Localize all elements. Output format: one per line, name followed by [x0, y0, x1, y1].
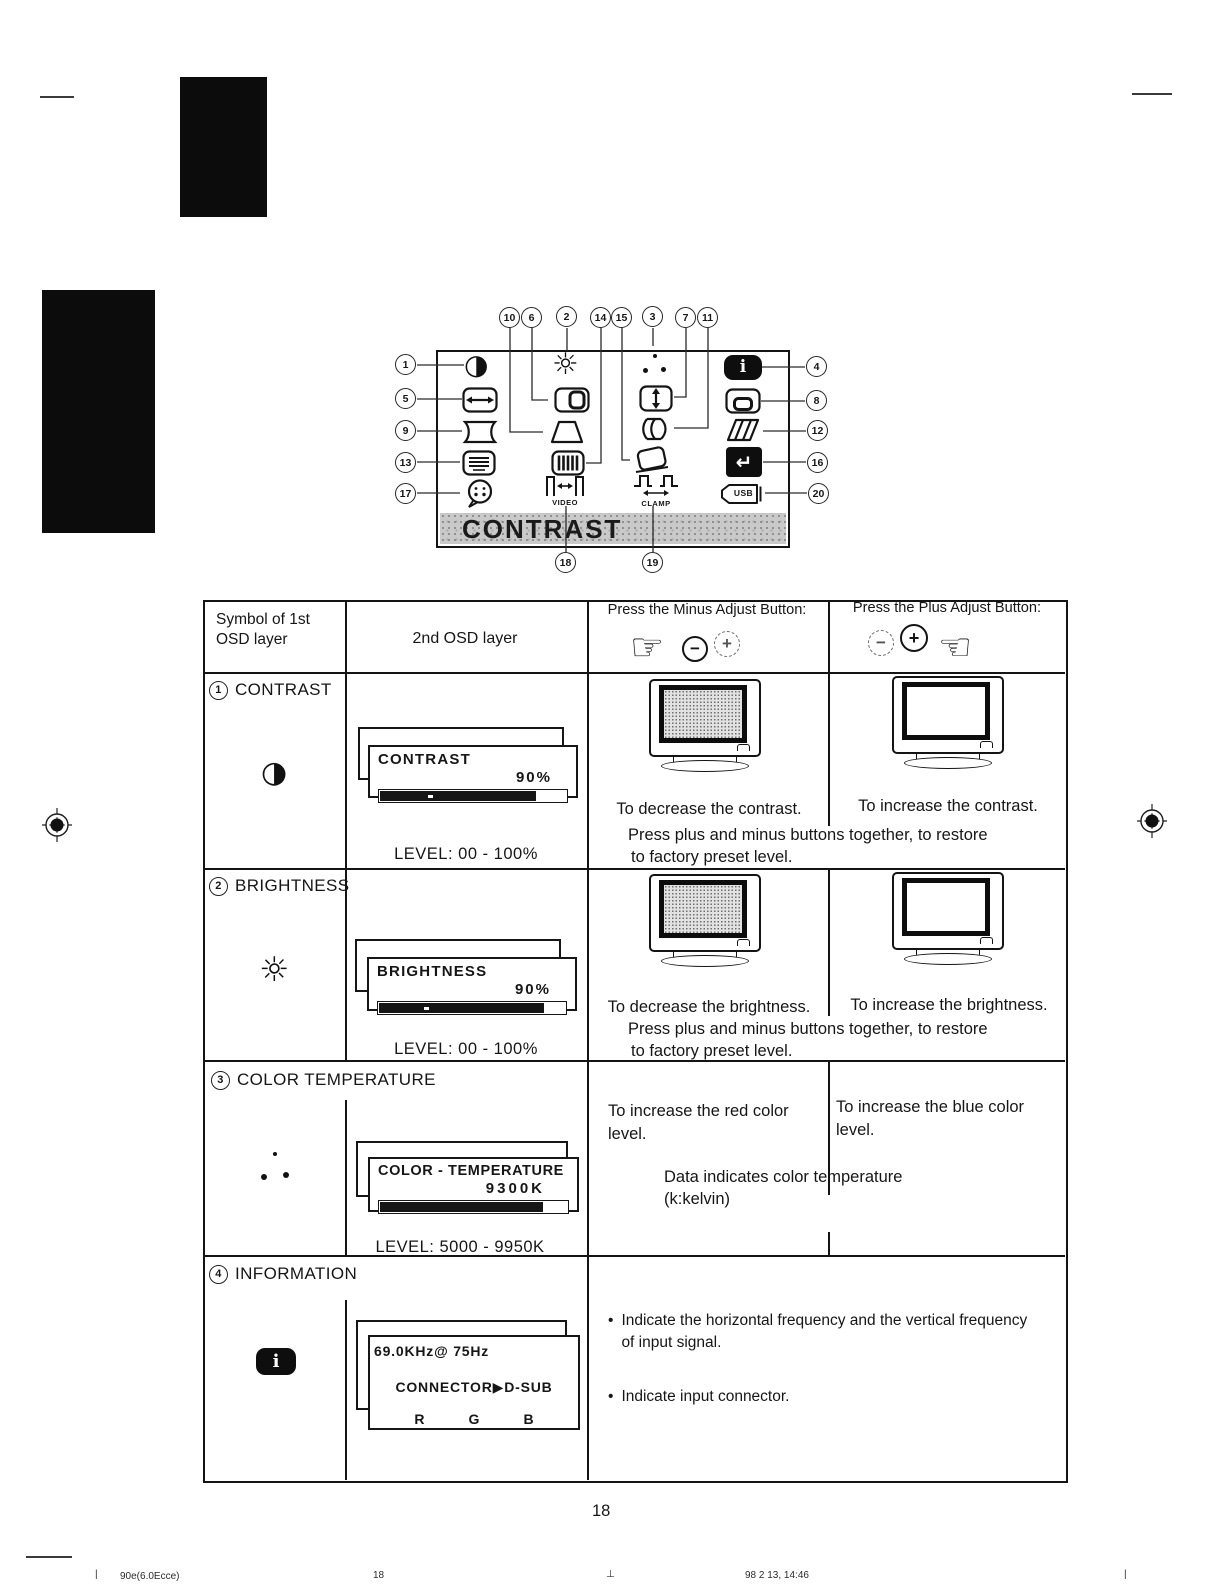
callout-16: 16 — [807, 452, 828, 473]
col-border — [828, 1232, 830, 1255]
plus-button-icon: + — [714, 631, 740, 657]
col-border — [828, 868, 830, 1016]
row-heading-label: INFORMATION — [235, 1264, 357, 1284]
row-heading: 4 INFORMATION — [209, 1264, 357, 1284]
osd-value: 90% — [377, 981, 567, 998]
contrast-symbol-icon: ◑ — [261, 758, 287, 788]
header-col3: Press the Minus Adjust Button: — [588, 602, 826, 618]
callout-7: 7 — [675, 307, 696, 328]
callout-12: 12 — [807, 420, 828, 441]
info-bullet-1: • Indicate the horizontal frequency and … — [608, 1310, 1040, 1354]
row-number: 2 — [209, 877, 228, 896]
language-icon — [466, 479, 496, 509]
callout-4: 4 — [806, 356, 827, 377]
osd-level-bar — [377, 1001, 567, 1015]
minus-button-icon: − — [868, 630, 894, 656]
clamp-icon: CLAMP — [632, 472, 680, 508]
crop-mark — [40, 96, 74, 98]
callout-8: 8 — [806, 390, 827, 411]
footer-datetime: 98 2 13, 14:46 — [745, 1570, 809, 1581]
row-number: 4 — [209, 1265, 228, 1284]
row-number: 3 — [211, 1071, 230, 1090]
monitor-increased — [888, 872, 1008, 965]
callout-6: 6 — [521, 307, 542, 328]
row-heading-label: COLOR TEMPERATURE — [237, 1070, 436, 1090]
contrast-icon: ◑ — [464, 351, 488, 379]
pin-balance-icon — [637, 416, 673, 442]
level-range: LEVEL: 00 - 100% — [346, 845, 586, 864]
hand-pointing-right-icon: ☞ — [630, 628, 664, 666]
callout-17: 17 — [395, 483, 416, 504]
information-symbol-icon: i — [256, 1348, 296, 1375]
minus-button-icon: − — [682, 636, 708, 662]
osd-value: 90% — [378, 769, 568, 786]
rgb-readout: R G B — [370, 1411, 578, 1427]
plus-caption: To increase the blue color level. — [836, 1096, 1054, 1142]
minus-caption: To decrease the contrast. — [593, 800, 825, 819]
header-col4: Press the Plus Adjust Button: — [829, 600, 1065, 616]
connector-arrow-icon: ▶ — [493, 1380, 505, 1396]
osd-front-window: 69.0KHz@ 75Hz CONNECTOR▶D-SUB R G B — [368, 1335, 580, 1430]
level-range: LEVEL: 5000 - 9950K — [340, 1238, 580, 1257]
row-heading-label: CONTRAST — [235, 680, 332, 700]
h-size-icon — [462, 387, 498, 413]
callout-3: 3 — [642, 306, 663, 327]
osd-window-information: 69.0KHz@ 75Hz CONNECTOR▶D-SUB R G B — [354, 1318, 584, 1433]
row-heading: 3 COLOR TEMPERATURE — [211, 1070, 436, 1090]
osd-title: BRIGHTNESS — [377, 963, 567, 980]
footer-tick-right: | — [1124, 1569, 1127, 1580]
osd-diagram: CONTRAST ◑ ☼ i — [380, 300, 850, 590]
kelvin-note: Data indicates color temperature (k:kelv… — [664, 1166, 902, 1210]
minus-caption: To increase the red color level. — [608, 1100, 820, 1146]
page-number: 18 — [592, 1502, 610, 1521]
col-border — [587, 602, 589, 1480]
registration-mark-icon — [1137, 804, 1167, 838]
row-heading-label: BRIGHTNESS — [235, 876, 350, 896]
col-border — [345, 1300, 347, 1480]
osd-window-brightness: BRIGHTNESS 90% — [353, 937, 583, 1017]
crop-mark — [1132, 93, 1172, 95]
monitor-increased — [888, 676, 1008, 769]
osd-front-window: CONTRAST 90% — [368, 745, 578, 798]
callout-leader-lines — [380, 300, 850, 590]
v-position-icon — [725, 388, 761, 414]
connector-readout: CONNECTOR▶D-SUB — [370, 1379, 578, 1396]
minus-caption: To decrease the brightness. — [591, 998, 827, 1017]
footer-page-number: 18 — [373, 1570, 384, 1581]
redaction-block-top — [180, 77, 267, 217]
restore-note: Press plus and minus buttons together, t… — [628, 824, 988, 868]
osd-front-window: COLOR - TEMPERATURE 9300K — [368, 1157, 579, 1212]
header-col2: 2nd OSD layer — [346, 630, 584, 648]
recall-icon: ↵ — [726, 447, 762, 477]
registration-mark-icon — [42, 808, 72, 842]
information-icon: i — [724, 355, 762, 380]
header-col1: Symbol of 1st OSD layer — [216, 610, 340, 650]
manual-page: CONTRAST ◑ ☼ i — [0, 0, 1224, 1584]
monitor-decreased — [645, 679, 765, 772]
color-temperature-icon — [641, 352, 669, 376]
restore-note: Press plus and minus buttons together, t… — [628, 1018, 988, 1062]
osd-title: CONTRAST — [378, 751, 568, 768]
parallelogram-icon — [725, 417, 761, 443]
footer-tick-left: | — [95, 1569, 98, 1580]
video-label: VIDEO — [543, 498, 587, 507]
callout-15: 15 — [611, 307, 632, 328]
callout-11: 11 — [697, 307, 718, 328]
callout-19: 19 — [642, 552, 663, 573]
footer-center-mark: ⊥ — [606, 1569, 615, 1580]
row-border — [205, 868, 1065, 870]
callout-2: 2 — [556, 306, 577, 327]
col-border — [345, 1100, 347, 1255]
callout-1: 1 — [395, 354, 416, 375]
footer-doc-code: 90e(6.0Ecce) — [120, 1571, 179, 1582]
callout-13: 13 — [395, 452, 416, 473]
col-border — [345, 602, 347, 1060]
callout-10: 10 — [499, 307, 520, 328]
plus-button-icon: + — [900, 624, 928, 652]
monitor-decreased — [645, 874, 765, 967]
plus-caption: To increase the contrast. — [830, 797, 1066, 816]
osd-front-window: BRIGHTNESS 90% — [367, 957, 577, 1011]
col-border — [828, 602, 830, 826]
osd-title: COLOR - TEMPERATURE — [378, 1163, 569, 1179]
callout-5: 5 — [395, 388, 416, 409]
v-size-icon — [639, 385, 673, 412]
h-position-icon — [554, 387, 590, 413]
color-temperature-symbol-icon — [258, 1148, 292, 1184]
brightness-symbol-icon: ☼ — [259, 953, 289, 987]
osd-value: 9300K — [378, 1180, 569, 1197]
osd-window-contrast: CONTRAST 90% — [356, 725, 586, 805]
clamp-label: CLAMP — [632, 499, 680, 508]
osd-window-color-temperature: COLOR - TEMPERATURE 9300K — [354, 1139, 584, 1219]
frequency-readout: 69.0KHz@ 75Hz — [374, 1343, 489, 1359]
redaction-block-left — [42, 290, 155, 533]
row-heading: 2 BRIGHTNESS — [209, 876, 350, 896]
plus-caption: To increase the brightness. — [830, 996, 1068, 1015]
level-range: LEVEL: 00 - 100% — [346, 1040, 586, 1059]
pincushion-icon — [462, 419, 498, 445]
osd-level-bar — [378, 1200, 569, 1214]
callout-18: 18 — [555, 552, 576, 573]
usb-icon: USB — [720, 483, 766, 505]
info-bullet-2: • Indicate input connector. — [608, 1386, 1040, 1408]
brightness-icon: ☼ — [552, 350, 579, 380]
video-signal-icon: VIDEO — [543, 473, 587, 507]
trapezoid-icon — [549, 419, 585, 445]
usb-label: USB — [731, 488, 756, 498]
row-number: 1 — [209, 681, 228, 700]
row-heading: 1 CONTRAST — [209, 680, 332, 700]
row-border — [205, 672, 1065, 674]
hand-pointing-left-icon: ☜ — [938, 628, 972, 666]
row-border — [205, 1255, 1065, 1257]
callout-9: 9 — [395, 420, 416, 441]
callout-20: 20 — [808, 483, 829, 504]
callout-14: 14 — [590, 307, 611, 328]
crop-mark — [26, 1556, 72, 1558]
menu-lines-icon — [462, 450, 496, 476]
osd-level-bar — [378, 789, 568, 803]
